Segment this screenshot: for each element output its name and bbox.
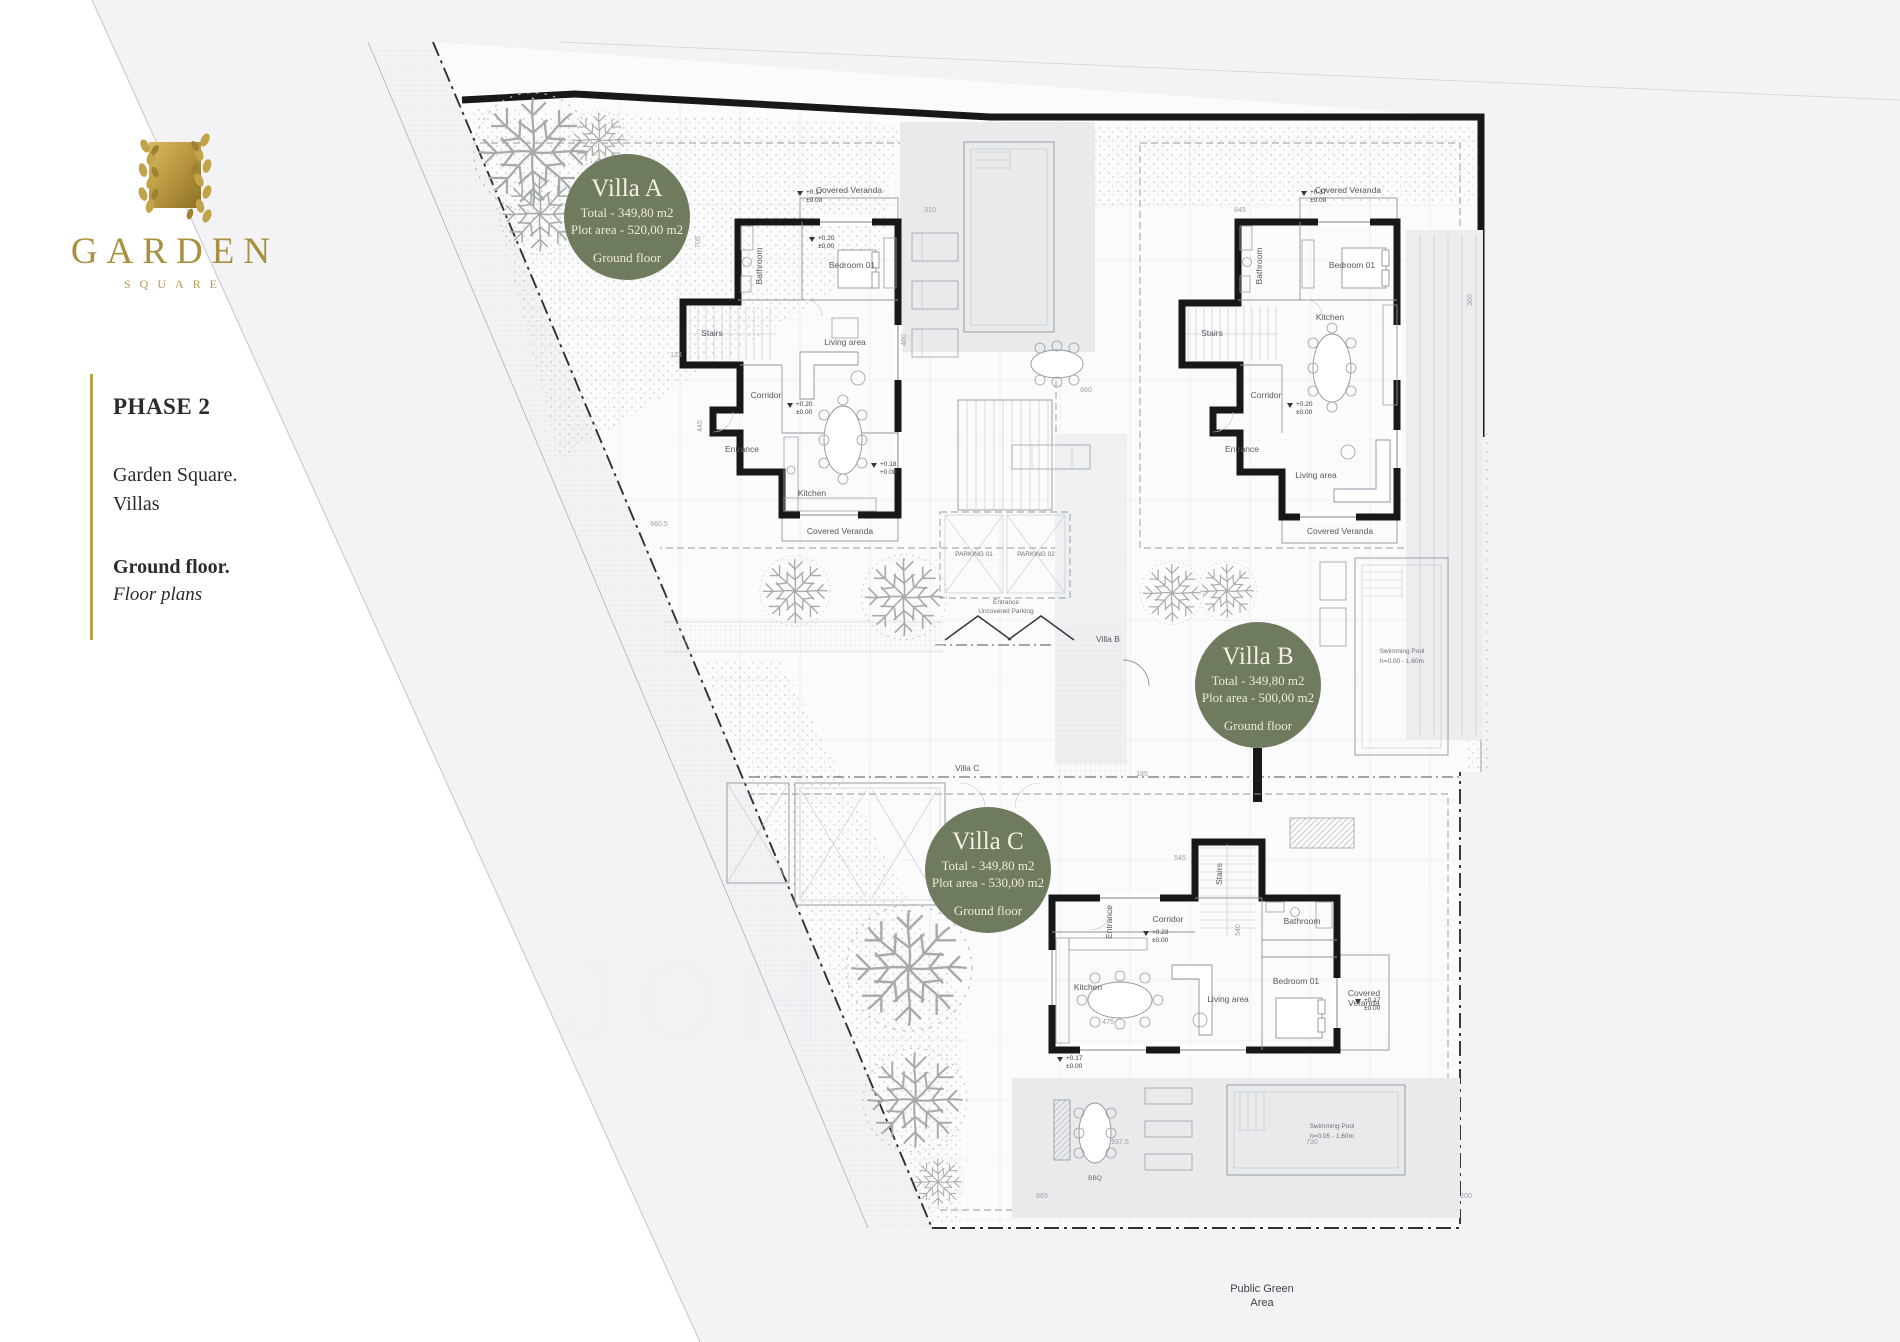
room-label: Covered Veranda [807,526,873,536]
svg-text:+0.23: +0.23 [1152,929,1169,936]
floor-subtitle: Floor plans [113,584,237,606]
svg-text:+0.20: +0.20 [796,401,813,408]
parking-label: PARKING 01 [955,551,993,558]
bbq-label: BBQ [1088,1175,1102,1182]
svg-text:937.5: 937.5 [1111,1139,1129,1146]
gate-label-villa-c: Villa C [955,763,979,773]
svg-text:665: 665 [1036,1193,1048,1200]
parking-label: PARKING 02 [1017,551,1055,558]
room-label: Covered Veranda [816,185,882,195]
svg-text:Villa A: Villa A [591,175,662,202]
gold-rule [90,374,93,640]
svg-text:+0.17: +0.17 [1066,1055,1083,1062]
svg-text:+0.08: +0.08 [880,469,897,476]
svg-text:Ground floor: Ground floor [1224,718,1293,733]
project-type: Villas [113,493,237,516]
room-label: Bedroom 01 [1329,260,1376,270]
entrance-label: Uncovered Parking [978,608,1034,615]
villa-b-badge: Villa B Total - 349,80 m2 Plot area - 50… [1195,622,1321,748]
room-label: Corridor [1251,390,1282,400]
room-label: Entrance [1225,444,1259,454]
svg-text:730: 730 [1306,1139,1318,1146]
logo-title: GARDEN [40,230,310,273]
svg-text:Plot area - 530,00 m2: Plot area - 530,00 m2 [932,875,1044,890]
svg-text:±0.00: ±0.00 [1296,409,1313,416]
svg-text:+0.17: +0.17 [806,189,823,196]
svg-text:+0.17: +0.17 [1310,189,1327,196]
room-label: Bathroom [1284,916,1321,926]
room-label: Bathroom [1254,248,1264,285]
svg-text:+0.20: +0.20 [818,235,835,242]
entrance-label: Entrance [993,599,1019,606]
svg-text:Public Green: Public Green [1230,1283,1294,1295]
svg-text:Total - 349,80 m2: Total - 349,80 m2 [1212,673,1305,688]
room-label: Living area [1295,470,1337,480]
room-label: Corridor [1153,914,1184,924]
room-label: Kitchen [798,488,827,498]
svg-text:Area: Area [1250,1297,1274,1309]
floor-title: Ground floor. [113,556,237,579]
svg-text:+0.17: +0.17 [1364,997,1381,1004]
logo-subtitle: SQUARE [40,277,310,292]
project-name: Garden Square. [113,464,237,487]
svg-text:Total - 349,80 m2: Total - 349,80 m2 [581,205,674,220]
svg-text:Ground floor: Ground floor [593,250,662,265]
room-label: Kitchen [1316,312,1345,322]
svg-text:±0.00: ±0.00 [1364,1005,1381,1012]
svg-text:±0.00: ±0.00 [1066,1063,1083,1070]
svg-text:Ground floor: Ground floor [954,903,1023,918]
svg-text:185: 185 [1136,771,1148,778]
room-label: Stairs [701,328,723,338]
room-label: Bedroom 01 [1273,976,1320,986]
svg-text:+0.18: +0.18 [880,461,897,468]
room-label: Covered Veranda [1307,526,1373,536]
info-panel: PHASE 2 Garden Square. Villas Ground flo… [90,372,237,606]
room-label: Living area [1207,994,1249,1004]
room-label: Entrance [1104,905,1114,939]
svg-text:±0.00: ±0.00 [1152,937,1169,944]
svg-text:±0.00: ±0.00 [1310,197,1327,204]
room-label: Stairs [1201,328,1223,338]
villa-a-badge: Villa A Total - 349,80 m2 Plot area - 52… [564,154,690,280]
svg-text:+0.20: +0.20 [1296,401,1313,408]
svg-text:705: 705 [695,236,702,248]
room-label: Living area [824,337,866,347]
svg-text:460: 460 [901,334,908,346]
svg-text:540: 540 [1235,924,1242,936]
room-label: Corridor [751,390,782,400]
room-label: Stairs [1214,863,1224,885]
pool-label: h=0.00 - 1.60m [1380,658,1424,665]
phase-title: PHASE 2 [113,394,237,420]
svg-text:475: 475 [1102,1019,1114,1026]
svg-text:200: 200 [1460,1193,1472,1200]
svg-text:680: 680 [1080,387,1092,394]
svg-text:±0.00: ±0.00 [796,409,813,416]
svg-text:845: 845 [1234,207,1246,214]
svg-text:Total - 349,80 m2: Total - 349,80 m2 [942,858,1035,873]
gate-label-villa-b: Villa B [1096,634,1120,644]
pool-label: Swimming Pool [1380,648,1425,655]
svg-text:545: 545 [1174,855,1186,862]
svg-text:660.5: 660.5 [650,521,668,528]
room-label: Kitchen [1074,982,1103,992]
svg-text:445: 445 [697,420,704,432]
svg-text:Villa C: Villa C [952,828,1023,855]
pool-label: Swimming Pool [1310,1123,1355,1130]
svg-text:±0.00: ±0.00 [818,243,835,250]
svg-text:±0.00: ±0.00 [806,197,823,204]
svg-text:Plot area - 520,00 m2: Plot area - 520,00 m2 [571,222,683,237]
garden-square-logo-icon [127,128,223,224]
room-label: Bedroom 01 [829,260,876,270]
villa-c-badge: Villa C Total - 349,80 m2 Plot area - 53… [925,807,1051,933]
svg-text:310: 310 [924,207,936,214]
svg-text:360: 360 [1467,294,1474,306]
svg-text:Plot area - 500,00 m2: Plot area - 500,00 m2 [1202,690,1314,705]
svg-text:123: 123 [670,352,682,359]
brand-block: GARDEN SQUARE [40,128,310,292]
svg-text:Villa B: Villa B [1222,643,1293,670]
room-label: Bathroom [754,248,764,285]
room-label: Entrance [725,444,759,454]
